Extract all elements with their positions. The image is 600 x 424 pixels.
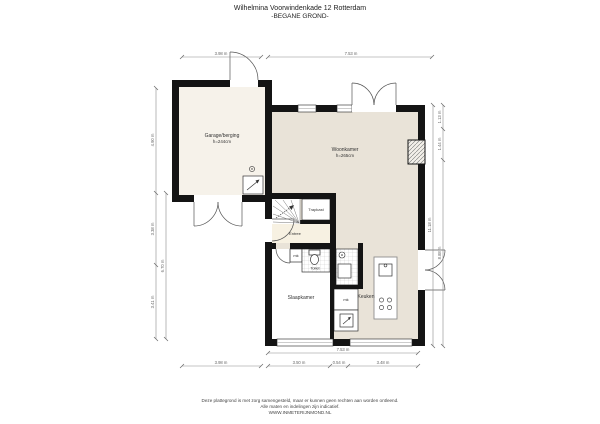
- dim-right-outer-3: 8.88 m: [437, 246, 442, 259]
- dim-top-garage: 3.98 m: [215, 51, 228, 56]
- garage-double-door: [194, 195, 242, 226]
- entree-label: Entree: [289, 231, 302, 236]
- dim-bottom-seg2: 0.54 m: [333, 360, 346, 365]
- keuken-label: Keuken: [358, 294, 375, 300]
- chimney-hatch: [408, 140, 425, 164]
- woonkamer-height-label: h=265cm: [336, 153, 355, 158]
- dim-right-outer-1: 1.13 m: [437, 110, 442, 123]
- dim-left-outer-2: 3.38 m: [150, 222, 155, 235]
- dim-left-inner: 6.70 m: [160, 259, 165, 272]
- french-doors: [352, 83, 396, 112]
- dim-right-inner: 11.18 m: [427, 217, 432, 232]
- slaapkamer-label: Slaapkamer: [288, 295, 315, 301]
- floorplan-drawing: Garage/berging h=244cm Woonkamer h=265cm…: [0, 0, 600, 424]
- mk-hal-label: mk: [293, 253, 298, 258]
- dim-right-outer-2: 1.44 m: [437, 137, 442, 150]
- disclaimer-line-3: WWW.INMETERIJNMOND.NL: [0, 410, 600, 416]
- toilet-label: Toilet: [310, 266, 320, 271]
- dim-bottom-seg1: 3.50 m: [293, 360, 306, 365]
- dim-left-outer-3: 3.41 m: [150, 295, 155, 308]
- dim-bottom-total: 7.53 m: [337, 347, 350, 352]
- kitchen-sink-icon: [379, 264, 392, 276]
- dim-bottom-garage: 3.98 m: [215, 360, 228, 365]
- disclaimer: Deze plattegrond is met zorg samengestel…: [0, 398, 600, 415]
- dim-top-house: 7.53 m: [345, 51, 358, 56]
- mk-keuken-label: mk: [343, 297, 348, 302]
- garage-height-label: h=244cm: [213, 139, 232, 144]
- trapkast-label: Trapkast: [308, 207, 324, 212]
- room-entree: [272, 224, 330, 243]
- appliance-icon: [340, 314, 353, 327]
- dim-bottom-seg3: 3.48 m: [377, 360, 390, 365]
- dim-left-outer-1: 4.90 m: [150, 133, 155, 146]
